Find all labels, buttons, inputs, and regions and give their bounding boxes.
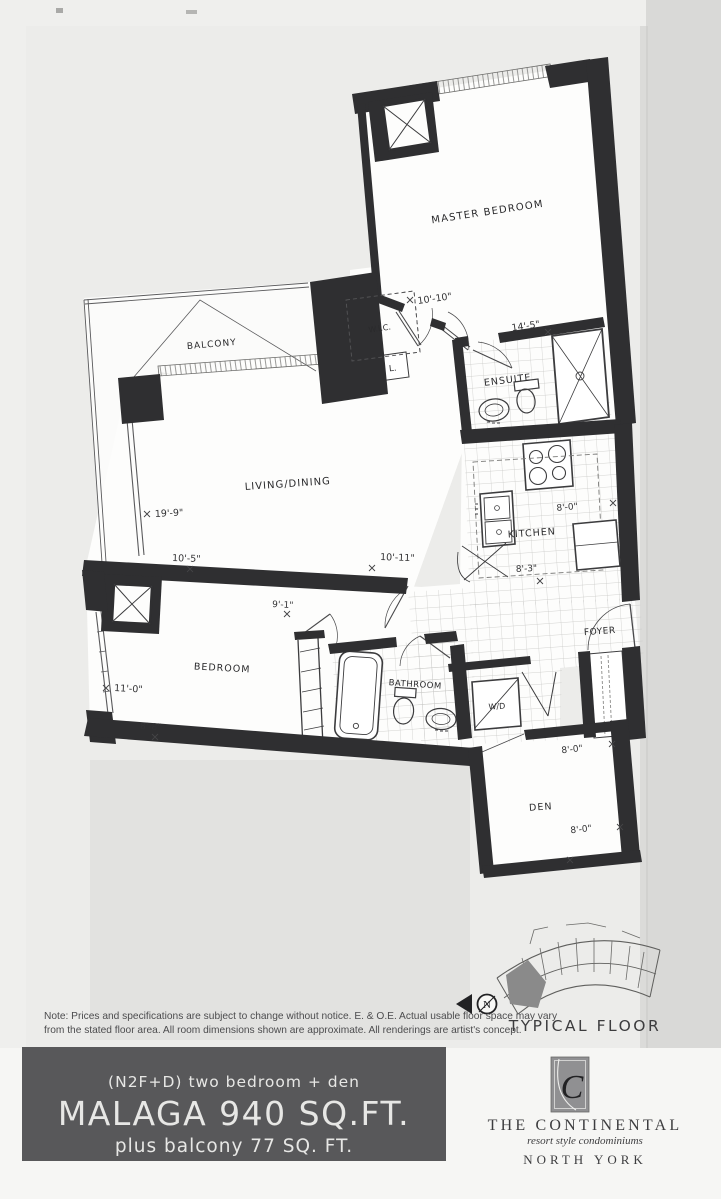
brand-city: NORTH YORK: [523, 1152, 647, 1167]
dim-bedroom-width: 8'-8": [140, 722, 162, 733]
dim-living-width: 10'-5": [172, 553, 201, 565]
brand-monogram: C: [561, 1069, 584, 1106]
dim-hall-width: 9'-1": [272, 600, 294, 611]
dim-bedroom-length: 11'-0": [114, 683, 143, 695]
floorplan-canvas: MASTER BEDROOM BALCONY LIVING/DINING W.I…: [0, 0, 721, 1199]
dim-kitchen-width: 8'-0": [556, 502, 578, 514]
scan-lower-shading: [90, 760, 470, 1040]
brand-name: THE CONTINENTAL: [488, 1117, 683, 1134]
unit-title: MALAGA 940 SQ.FT.: [58, 1094, 410, 1133]
unit-balcony-note: plus balcony 77 SQ. FT.: [115, 1136, 353, 1157]
scan-mark-2: [186, 10, 197, 14]
floorplan-page: { "plan": { "rooms": { "master_bedroom":…: [0, 0, 721, 1199]
note-line-1: Note: Prices and specifications are subj…: [44, 1011, 558, 1022]
unit-code: (N2F+D): [108, 1073, 182, 1091]
scan-right-band: [646, 0, 721, 1050]
unit-banner: (N2F+D)two bedroom + den MALAGA 940 SQ.F…: [22, 1047, 446, 1161]
note-line-2: from the stated floor area. All room dim…: [44, 1025, 522, 1036]
compass-letter: N: [483, 999, 491, 1011]
paper-edge-shadow: [640, 26, 648, 1048]
unit-code-and-type: (N2F+D)two bedroom + den: [108, 1073, 360, 1091]
dim-kitchen-length: 8'-3": [516, 564, 538, 575]
unit-type: two bedroom + den: [188, 1073, 360, 1091]
brand-tagline: resort style condominiums: [527, 1135, 643, 1147]
label-linen: L.: [389, 364, 397, 375]
label-den: DEN: [529, 801, 553, 814]
dim-living-width2: 10'-11": [380, 552, 415, 564]
dim-living-length: 19'-9": [155, 508, 184, 520]
label-washer-dryer: W/D: [488, 702, 505, 712]
scan-mark-1: [56, 8, 63, 13]
